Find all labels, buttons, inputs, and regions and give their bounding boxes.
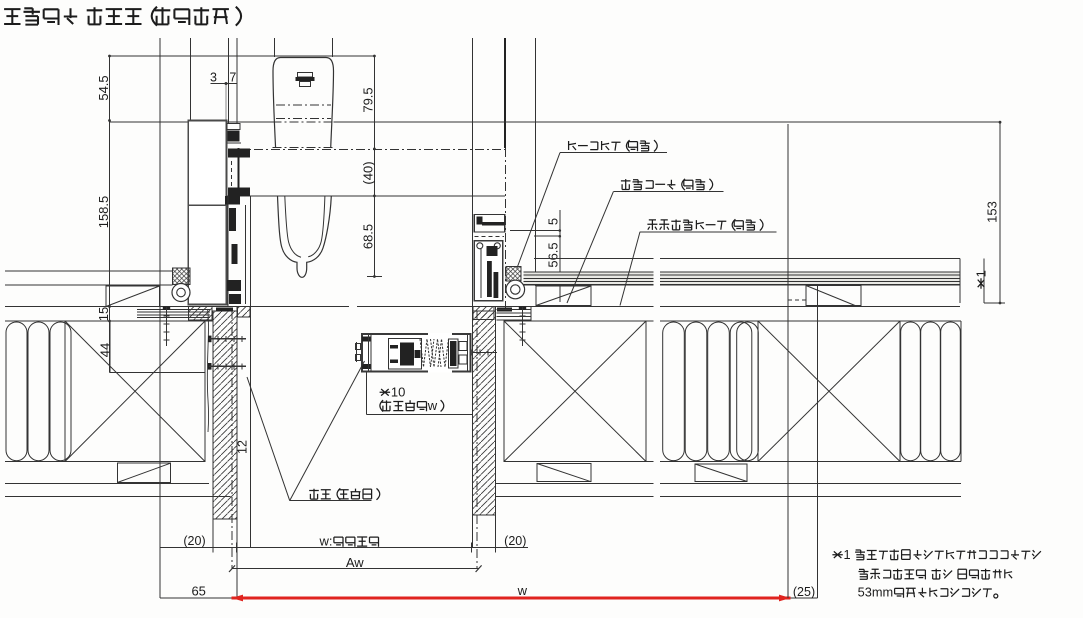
svg-text:56.5: 56.5: [545, 242, 560, 267]
svg-text:(25): (25): [793, 585, 815, 599]
svg-text:w:: w:: [319, 534, 333, 549]
svg-text:3: 3: [210, 71, 217, 85]
svg-text:(20): (20): [504, 534, 526, 548]
svg-text:68.5: 68.5: [361, 224, 376, 249]
svg-text:153: 153: [985, 201, 1000, 223]
svg-text:5: 5: [545, 218, 560, 225]
svg-text:(40): (40): [361, 161, 376, 184]
svg-text:53mm: 53mm: [858, 585, 894, 600]
svg-text:7: 7: [229, 71, 236, 85]
svg-text:158.5: 158.5: [96, 196, 111, 229]
svg-text:w: w: [517, 583, 528, 598]
svg-text:w: w: [427, 398, 438, 413]
svg-text:1: 1: [973, 270, 988, 277]
svg-text:54.5: 54.5: [96, 75, 111, 100]
svg-text:1: 1: [844, 547, 851, 562]
svg-text:65: 65: [191, 584, 205, 599]
svg-text:10: 10: [391, 385, 405, 400]
svg-text:Aw: Aw: [346, 555, 364, 570]
svg-text:79.5: 79.5: [361, 87, 376, 112]
svg-text:(20): (20): [183, 534, 205, 548]
svg-text:12: 12: [236, 440, 250, 454]
svg-text:15: 15: [96, 307, 111, 321]
